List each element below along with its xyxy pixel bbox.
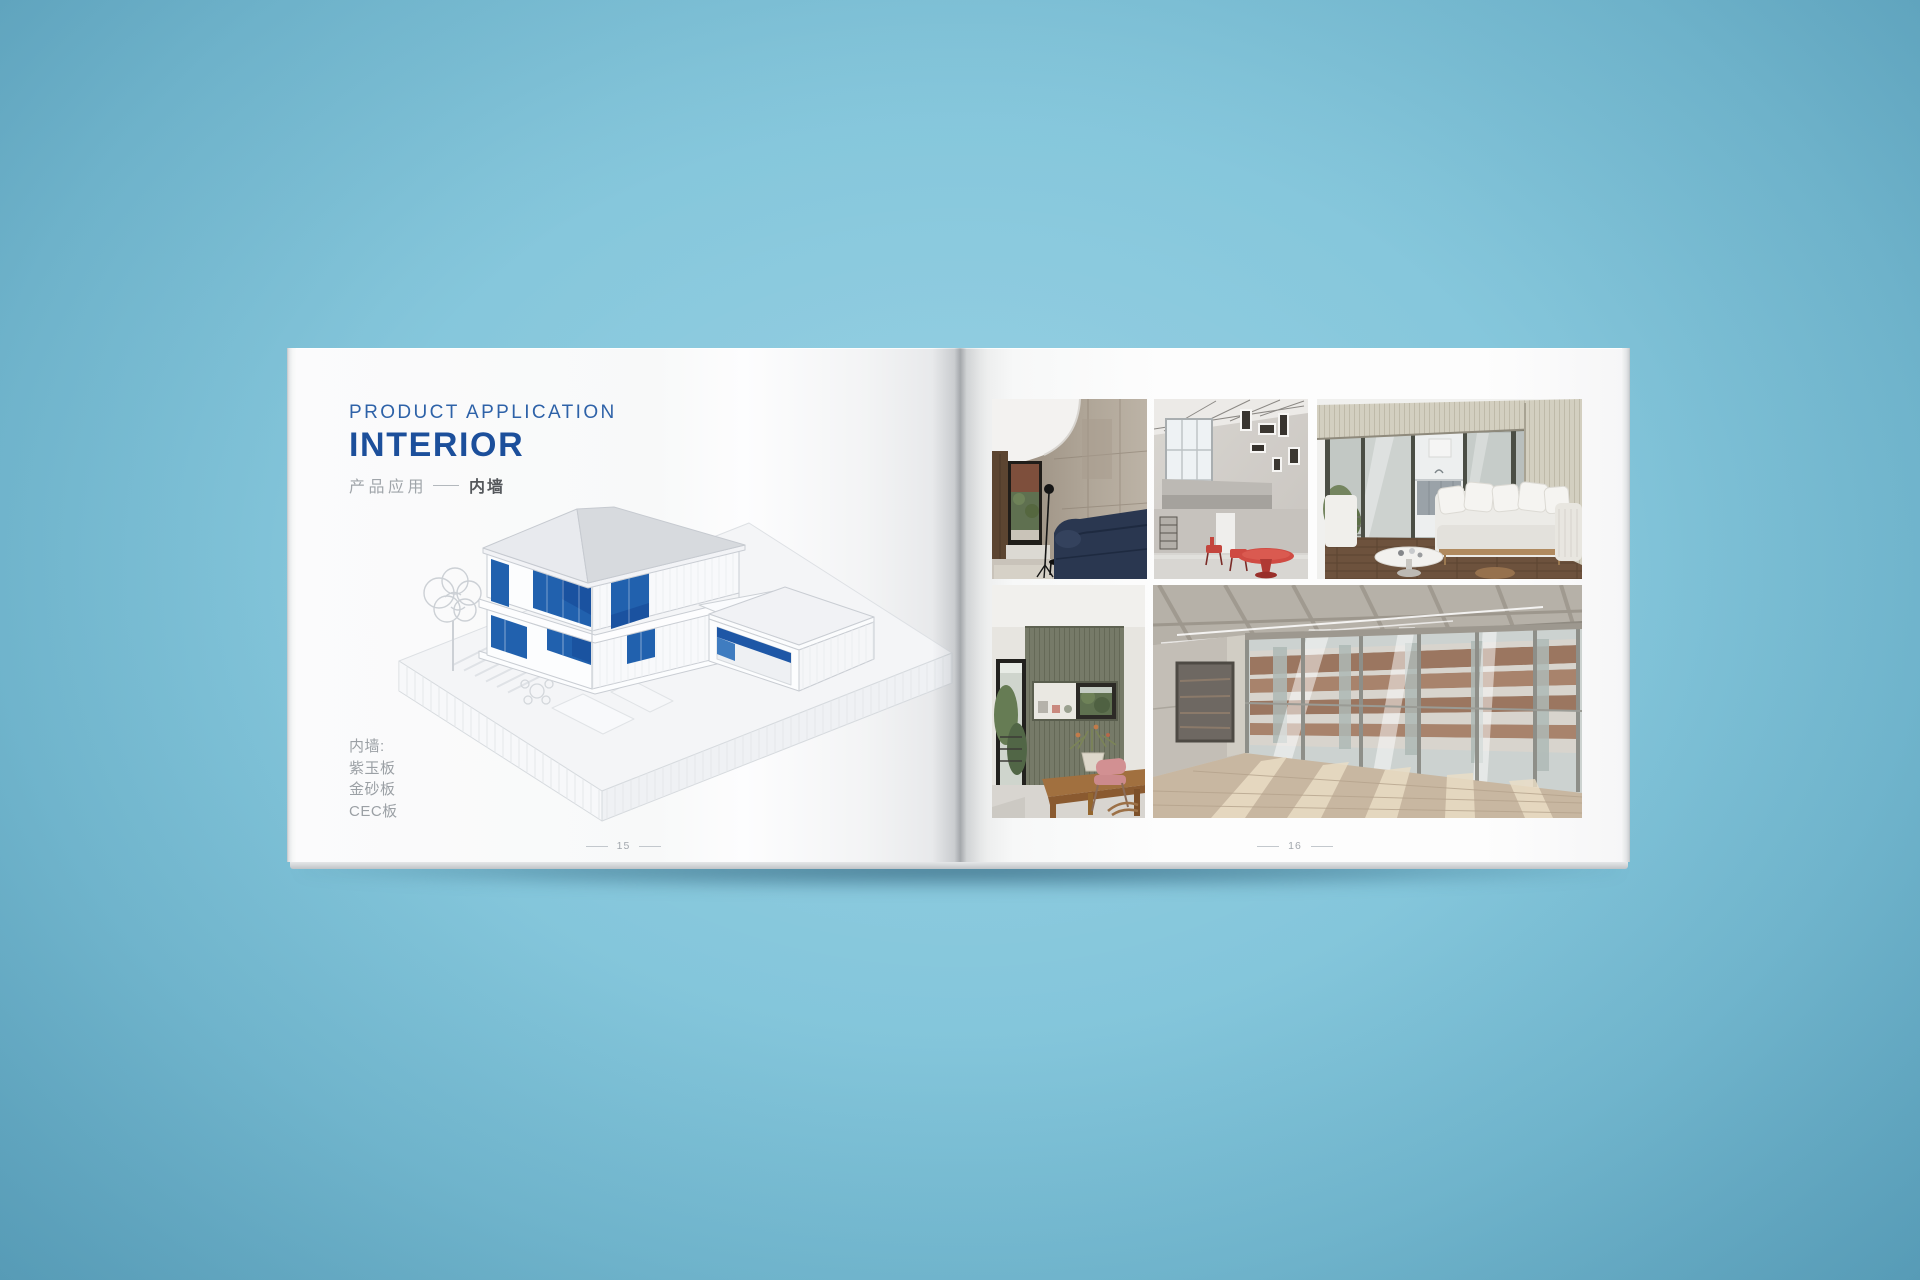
page-title: INTERIOR (349, 427, 617, 463)
subtitle-divider-line (433, 485, 459, 486)
page-number-dash (1311, 846, 1333, 847)
page-number-value: 16 (1288, 840, 1302, 852)
page-number-value: 15 (617, 840, 631, 852)
page-number-dash (1257, 846, 1279, 847)
right-page: 16 (960, 348, 1630, 862)
left-page-number: 15 (287, 840, 960, 852)
material-item: 紫玉板 (349, 758, 398, 780)
eyebrow-text: PRODUCT APPLICATION (349, 402, 617, 424)
photo-dining-nook (992, 585, 1145, 818)
material-item: 金砂板 (349, 779, 398, 801)
left-page: PRODUCT APPLICATION INTERIOR 产品应用 内墙 (287, 348, 960, 862)
materials-heading: 内墙: (349, 736, 398, 758)
right-page-number: 16 (960, 840, 1630, 852)
page-heading: PRODUCT APPLICATION INTERIOR 产品应用 内墙 (349, 402, 617, 497)
photo-white-loft-red-table (1154, 399, 1308, 579)
isometric-house-illustration (387, 493, 962, 845)
materials-list: 内墙: 紫玉板 金砂板 CEC板 (349, 736, 398, 822)
photo-concrete-living-room (992, 399, 1147, 579)
page-number-dash (639, 846, 661, 847)
brochure-spread: PRODUCT APPLICATION INTERIOR 产品应用 内墙 (287, 348, 1630, 862)
material-item: CEC板 (349, 801, 398, 823)
photo-terrace-lounge-kitchen (1317, 399, 1582, 579)
photo-concrete-hall-glazing (1153, 585, 1582, 818)
desk-background: { "colors": { "background_blue": "#84c6d… (0, 0, 1920, 1280)
page-number-dash (586, 846, 608, 847)
